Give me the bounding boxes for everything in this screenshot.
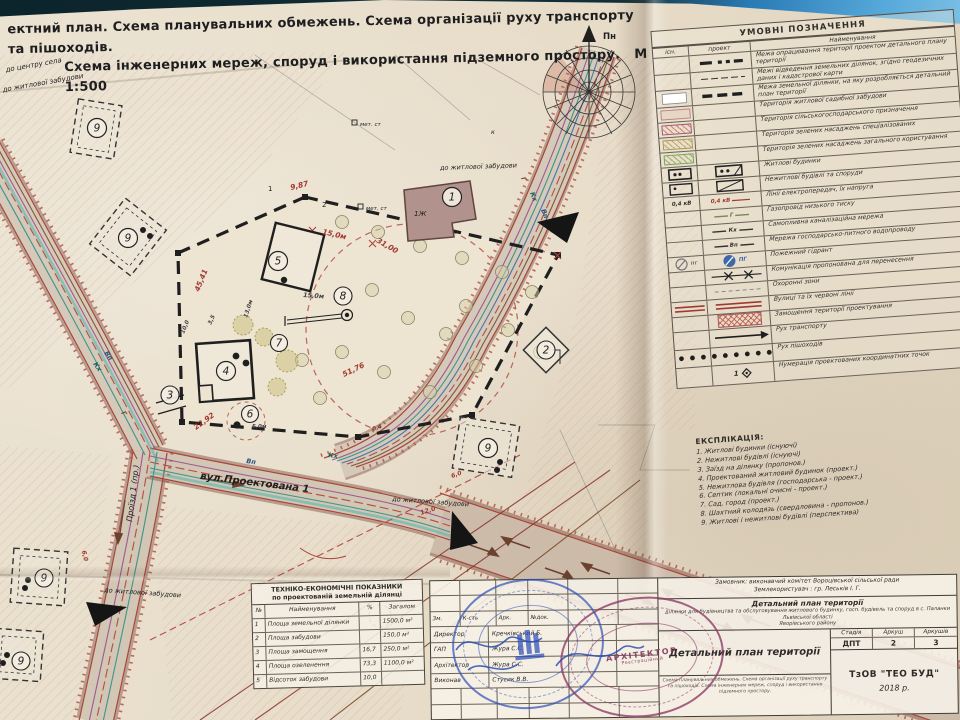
svg-text:Г: Г [519, 176, 528, 184]
sheets-total: 3 [915, 637, 957, 649]
metal-post-icons [352, 120, 363, 209]
explication-panel: ЕКСПЛІКАЦІЯ: 1. Житлові будинки (існуючі… [695, 419, 959, 528]
svg-text:2: 2 [543, 345, 550, 357]
svg-text:2: 2 [322, 201, 326, 209]
title-block-main: Замовник: виконавчий комітет Вороцівсько… [658, 575, 958, 717]
svg-text:9: 9 [41, 573, 48, 585]
sheet-label: Аркуш [873, 628, 915, 637]
svg-text:9: 9 [485, 443, 492, 455]
stage-label: Стадія [831, 629, 873, 638]
power-line-existing-symbol: 0,4 кВ [664, 196, 701, 213]
svg-text:Вп: Вп [246, 457, 257, 466]
svg-text:6: 6 [247, 409, 254, 421]
met-st-label: мет. ст [360, 122, 382, 128]
svg-text:9: 9 [125, 233, 132, 245]
stage-value: ДПТ [831, 638, 873, 650]
green-special-symbol [659, 136, 696, 153]
svg-text:5: 5 [275, 256, 282, 268]
svg-text:6,0: 6,0 [450, 470, 462, 480]
svg-text:9,87: 9,87 [289, 179, 310, 192]
svg-text:4: 4 [223, 366, 230, 378]
coord-point-symbol: 1 [712, 362, 775, 385]
residential-area-symbol [657, 106, 694, 123]
green-public-symbol [660, 151, 697, 168]
svg-text:9: 9 [18, 656, 25, 668]
svg-text:8: 8 [340, 291, 347, 303]
customer-line: Замовник: виконавчий комітет Вороцівсько… [715, 577, 899, 585]
nonresidential-existing-symbol [663, 181, 700, 198]
title-block-signatures: Зм. К-сть Арк. №док. ДиректорКречківськи… [430, 578, 660, 719]
hydrant-existing-symbol: пг [668, 256, 705, 273]
house-existing-symbol [662, 166, 699, 183]
sheet-content-note: Схема планувальних обмежень. Схема орган… [659, 674, 830, 716]
photographed-site-plan: Пн 1 2 3 4 5 6 7 8 9 9 9 9 9 1 2 9,87 31… [0, 0, 960, 720]
svg-text:1: 1 [268, 185, 272, 193]
svg-text:15,0м: 15,0м [303, 291, 325, 300]
floors-label: 1Ж [414, 209, 427, 218]
tep-table: ТЕХНІКО-ЕКОНОМІЧНІ ПОКАЗНИКИпо проектова… [251, 579, 426, 689]
legend-symbol [653, 56, 690, 74]
sheet-number: 2 [873, 637, 915, 649]
sheet-title: Детальний план території [659, 630, 831, 677]
parcel-rect-symbol [656, 90, 693, 108]
septic-6 [233, 421, 240, 428]
svg-text:9: 9 [94, 123, 101, 135]
svg-text:7: 7 [276, 338, 283, 350]
agricultural-area-symbol [658, 121, 695, 138]
red-lines-symbol [671, 301, 708, 318]
title-block: Зм. К-сть Арк. №док. ДиректорКречківськи… [429, 574, 959, 720]
company-name: ТзОВ "ТЕО БУД" [849, 668, 939, 683]
sheets-label: Аркушів [915, 628, 957, 637]
pedestrian-dots-symbol [675, 348, 712, 368]
k-label: к [491, 128, 495, 136]
project-year: 2018 р. [879, 682, 910, 694]
landuser-line: Землекористувач : гр. Леськів І. Г. [754, 586, 861, 593]
drawing-title: ектний план. Схема планувальних обмежень… [7, 6, 657, 99]
legend-panel: УМОВНІ ПОЗНАЧЕННЯ існ. проект Найменуван… [650, 9, 960, 389]
met-st-label: мет. ст [366, 206, 388, 212]
svg-text:1: 1 [449, 192, 456, 204]
svg-text:Кх: Кх [328, 451, 339, 460]
to-residential-label: до житлової забудови [439, 161, 518, 172]
svg-text:3: 3 [167, 390, 174, 402]
svg-text:5,0м: 5,0м [252, 424, 267, 430]
